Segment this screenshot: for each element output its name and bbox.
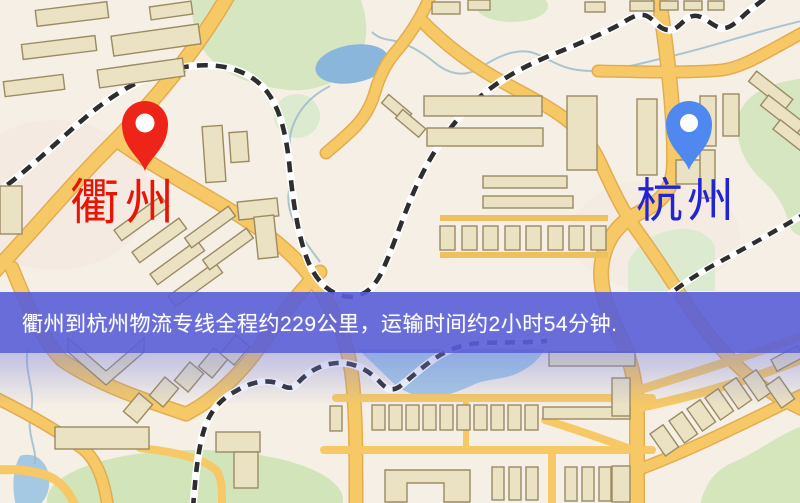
city-label-hangzhou: 杭州	[636, 174, 738, 227]
route-info-text: 衢州到杭州物流专线全程约229公里，运输时间约2小时54分钟.	[0, 308, 617, 338]
route-info-banner: 衢州到杭州物流专线全程约229公里，运输时间约2小时54分钟.	[0, 292, 800, 353]
map-screenshot: 衢州 杭州 衢州到杭州物流专线全程约229公里，运输时间约2小时54分钟.	[0, 0, 800, 503]
map-canvas: 衢州 杭州	[0, 0, 800, 503]
city-label-quzhou: 衢州	[70, 176, 180, 230]
pin-quzhou-hole	[136, 114, 155, 133]
pin-hangzhou-hole	[680, 114, 698, 132]
